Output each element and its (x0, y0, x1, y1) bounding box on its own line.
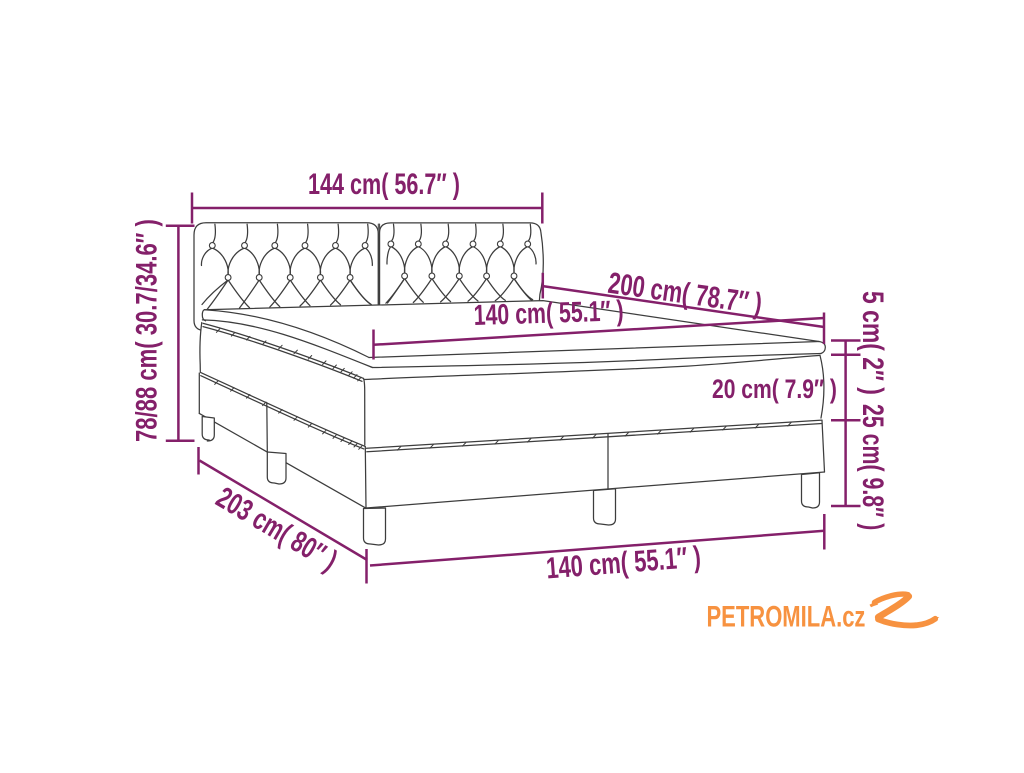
svg-text:140 cm( 55.1″ ): 140 cm( 55.1″ ) (473, 295, 624, 332)
svg-text:20 cm( 7.9″ ): 20 cm( 7.9″ ) (712, 375, 837, 405)
svg-text:78/88 cm( 30.7/34.6″ ): 78/88 cm( 30.7/34.6″ ) (129, 219, 163, 442)
svg-text:144 cm( 56.7″ ): 144 cm( 56.7″ ) (308, 166, 460, 200)
svg-text:25 cm( 9.8″ ): 25 cm( 9.8″ ) (856, 404, 891, 530)
svg-text:5 cm( 2″ ): 5 cm( 2″ ) (856, 291, 890, 395)
svg-text:PETROMILA.cz: PETROMILA.cz (707, 599, 866, 633)
